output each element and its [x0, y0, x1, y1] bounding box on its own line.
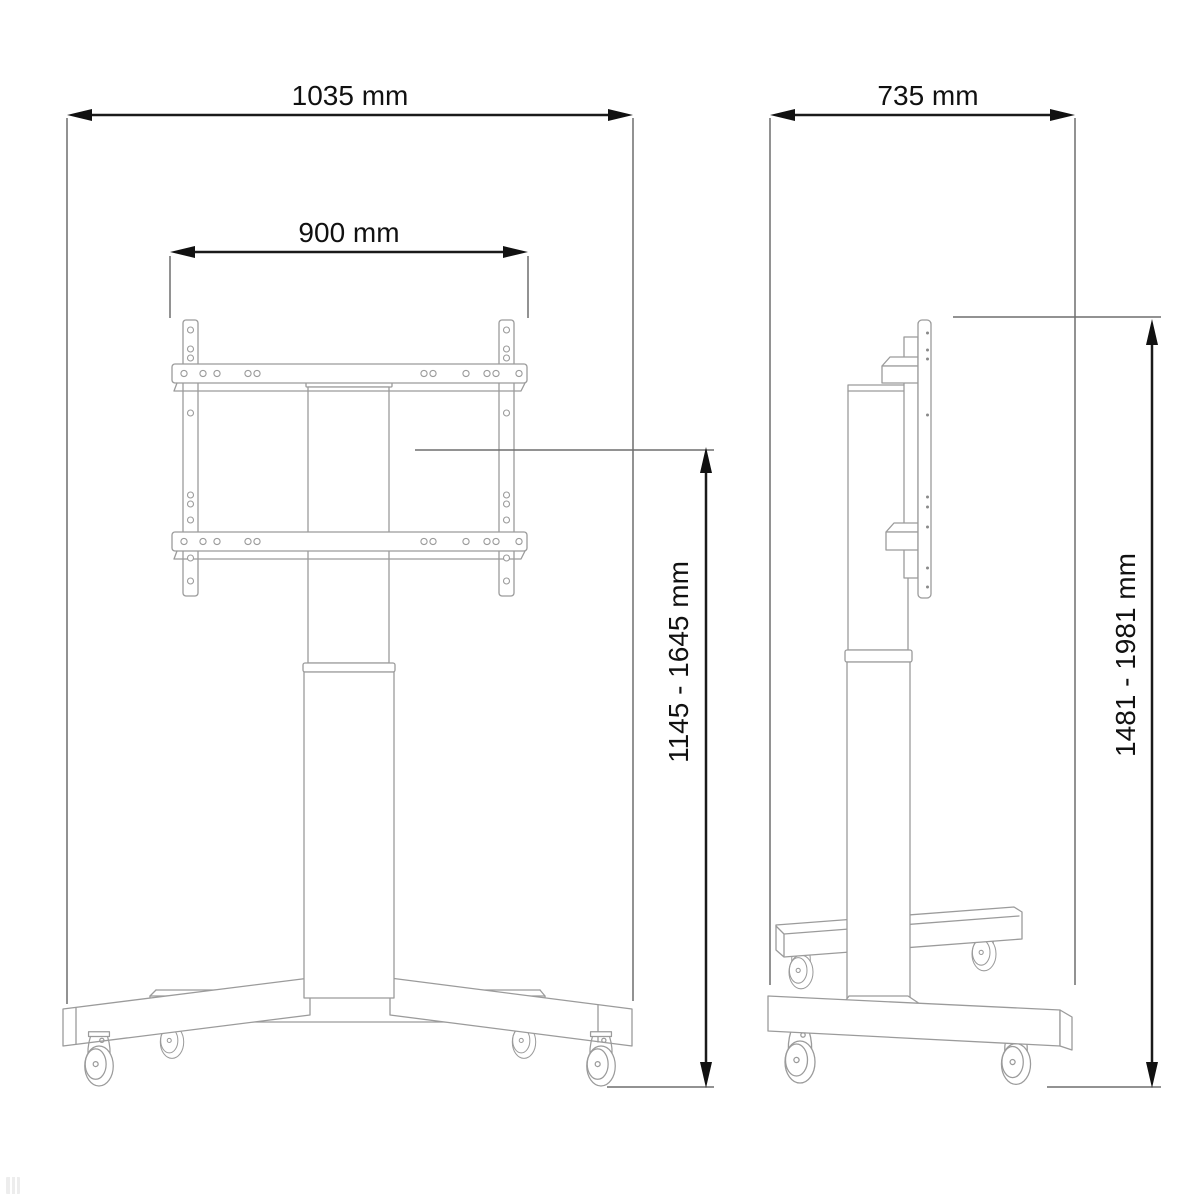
technical-drawing-page: 1035 mm 900 mm 1145 - 1645 mm: [0, 0, 1200, 1200]
side-view: 735 mm 1481 - 1981 mm: [768, 80, 1161, 1088]
tv-cart-dimension-drawing: 1035 mm 900 mm 1145 - 1645 mm: [0, 0, 1200, 1200]
watermark: [6, 1177, 20, 1194]
label-total-height-range: 1481 - 1981 mm: [1110, 553, 1141, 757]
hook-bottom: [886, 523, 918, 550]
front-view: 1035 mm 900 mm 1145 - 1645 mm: [63, 80, 714, 1088]
label-overall-width: 1035 mm: [292, 80, 409, 111]
label-depth: 735 mm: [877, 80, 978, 111]
arrow-right-icon: [503, 246, 528, 258]
lift-column-front: [303, 377, 395, 998]
panel-plate: [918, 320, 931, 598]
dim-total-height: 1481 - 1981 mm: [953, 317, 1161, 1088]
hook-top: [882, 357, 918, 383]
caster-front-left: [785, 1026, 815, 1083]
arrow-left-icon: [67, 109, 92, 121]
base-front-bar: [768, 996, 1072, 1050]
label-height-range: 1145 - 1645 mm: [663, 561, 694, 763]
arrow-left-icon: [170, 246, 195, 258]
side-artwork: [768, 320, 1072, 1084]
arrow-down-icon: [1146, 1062, 1158, 1088]
front-artwork: [63, 320, 632, 1086]
arrow-up-icon: [1146, 319, 1158, 345]
arrow-left-icon: [770, 109, 795, 121]
dim-mount-width: 900 mm: [170, 217, 528, 318]
arrow-up-icon: [700, 447, 712, 473]
label-mount-width: 900 mm: [298, 217, 399, 248]
arrow-right-icon: [1050, 109, 1075, 121]
arrow-right-icon: [608, 109, 633, 121]
arrow-down-icon: [700, 1062, 712, 1088]
